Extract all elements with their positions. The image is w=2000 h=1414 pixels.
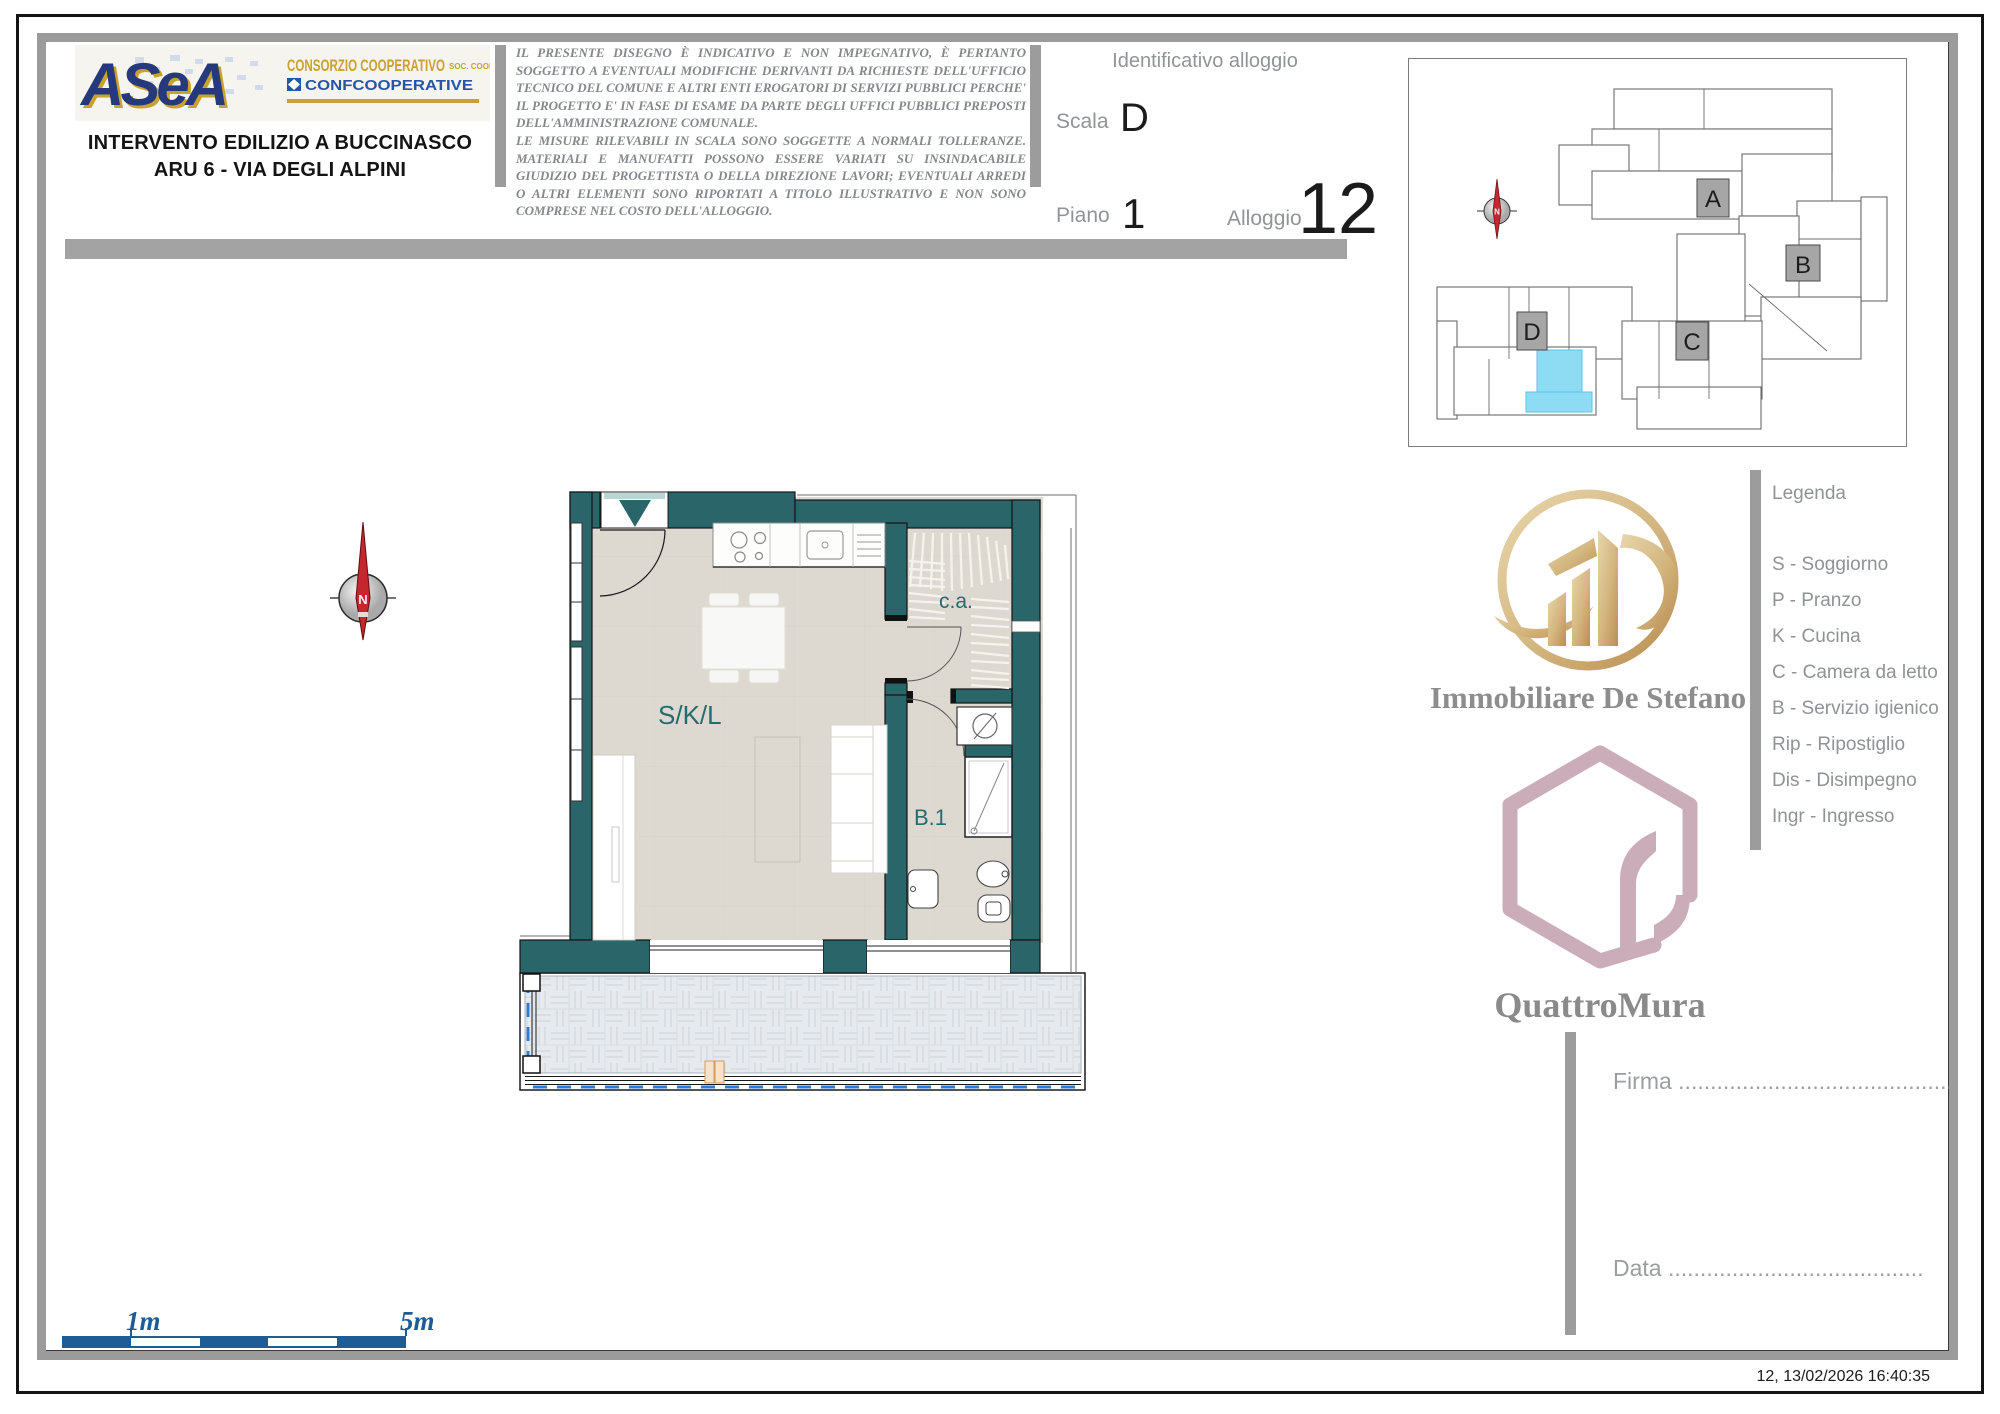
railing-gate: [715, 1061, 724, 1083]
block-a-label: A: [1705, 186, 1721, 213]
washing-machine-icon: [957, 707, 1012, 745]
shower-icon: [965, 757, 1012, 837]
scala-label: Scala: [1056, 110, 1109, 134]
piano-value: 1: [1122, 190, 1145, 238]
tagline-text: CONSORZIO COOPERATIVO: [287, 56, 445, 75]
bathroom-label: B.1: [914, 805, 947, 830]
legend-item: S - Soggiorno: [1772, 547, 1952, 583]
title-line-2: ARU 6 - VIA DEGLI ALPINI: [65, 157, 495, 184]
agency-logo: Immobiliare De Stefano: [1398, 468, 1778, 723]
toilet-icon: [978, 895, 1010, 922]
railing-gate: [705, 1061, 714, 1083]
confcooperative-icon: [287, 78, 301, 91]
balcony-tiles: [525, 976, 1081, 1073]
legend: Legenda S - Soggiorno P - Pranzo K - Cuc…: [1772, 483, 1952, 835]
legend-item: C - Camera da letto: [1772, 655, 1952, 691]
balcony-post: [523, 974, 540, 991]
alloggio-value: 12: [1298, 168, 1378, 250]
site-plan: A B C D N: [1408, 58, 1907, 447]
legend-item: K - Cucina: [1772, 619, 1952, 655]
legend-item: B - Servizio igienico: [1772, 691, 1952, 727]
bidet-icon: [977, 861, 1009, 887]
federation-text: CONFCOOPERATIVE: [305, 78, 473, 94]
legend-item: Dis - Disimpegno: [1772, 763, 1952, 799]
north-needle-icon: [356, 522, 370, 640]
builder-logo: QuattroMura: [1440, 735, 1770, 1035]
block-b-label: B: [1795, 252, 1811, 279]
balcony: [520, 973, 1085, 1090]
svg-text:N: N: [1494, 208, 1500, 217]
firma-line: Firma ..................................…: [1613, 1068, 1953, 1095]
drawing-sheet: ASeA ASeA CONSORZIO COOPERATIVO SOC. COO…: [0, 0, 2000, 1414]
data-line: Data ...................................…: [1613, 1255, 1924, 1282]
legend-item: P - Pranzo: [1772, 583, 1952, 619]
scala-value: D: [1120, 96, 1149, 141]
legend-item: Ingr - Ingresso: [1772, 799, 1952, 835]
compass-icon: N: [328, 508, 398, 648]
agency-name: Immobiliare De Stefano: [1430, 680, 1746, 715]
brand-text: ASeA: [79, 51, 225, 118]
builder-name: QuattroMura: [1494, 985, 1705, 1025]
floor-plan: S/K/L c.a. B.1: [515, 487, 1095, 1095]
divider-bar: [1030, 45, 1041, 187]
balcony-post: [523, 1056, 540, 1073]
north-label: N: [358, 592, 367, 607]
closet-label: c.a.: [939, 590, 973, 613]
header-divider: [65, 239, 1347, 259]
block-d-label: D: [1523, 319, 1540, 346]
divider-bar: [495, 45, 506, 187]
sheet-title: INTERVENTO EDILIZIO A BUCCINASCO ARU 6 -…: [65, 130, 495, 184]
mini-compass-icon: N: [1477, 179, 1517, 239]
tagline-suffix-text: SOC. COOP.: [449, 62, 490, 71]
scale-bar: 1m 5m: [60, 1302, 450, 1362]
timestamp: 12, 13/02/2026 16:40:35: [1530, 1368, 1930, 1386]
legend-title: Legenda: [1772, 483, 1952, 505]
disclaimer-paragraph: LE MISURE RILEVABILI IN SCALA SONO SOGGE…: [516, 132, 1026, 220]
sofa: [831, 725, 887, 873]
entry-door: [601, 492, 668, 528]
kitchen-counter: [713, 523, 885, 567]
living-room-label: S/K/L: [658, 700, 722, 730]
piano-label: Piano: [1056, 204, 1110, 228]
disclaimer-text: IL PRESENTE DISEGNO È INDICATIVO E NON I…: [516, 44, 1026, 220]
asca-logo: ASeA ASeA CONSORZIO COOPERATIVO SOC. COO…: [75, 45, 490, 121]
legend-item: Rip - Ripostiglio: [1772, 727, 1952, 763]
signature-bar: [1565, 1032, 1576, 1335]
wardrobe: [593, 755, 635, 940]
disclaimer-paragraph: IL PRESENTE DISEGNO È INDICATIVO E NON I…: [516, 44, 1026, 132]
unit-id-title: Identificativo alloggio: [1050, 50, 1360, 73]
dining-table: [702, 607, 785, 669]
alloggio-label: Alloggio: [1227, 207, 1302, 231]
washbasin-icon: [908, 870, 938, 908]
gold-underline: [287, 99, 479, 103]
title-line-1: INTERVENTO EDILIZIO A BUCCINASCO: [65, 130, 495, 157]
block-c-label: C: [1683, 329, 1700, 356]
